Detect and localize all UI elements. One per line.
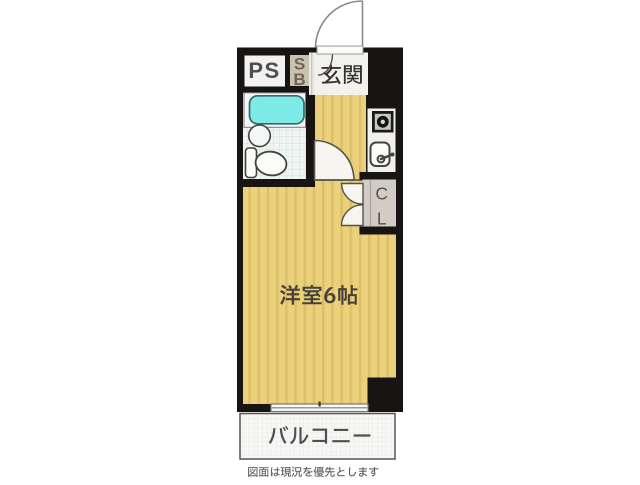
svg-text:C: C [375, 184, 388, 204]
svg-text:PS: PS [248, 58, 280, 83]
svg-text:L: L [377, 209, 387, 229]
svg-text:B: B [293, 70, 305, 89]
